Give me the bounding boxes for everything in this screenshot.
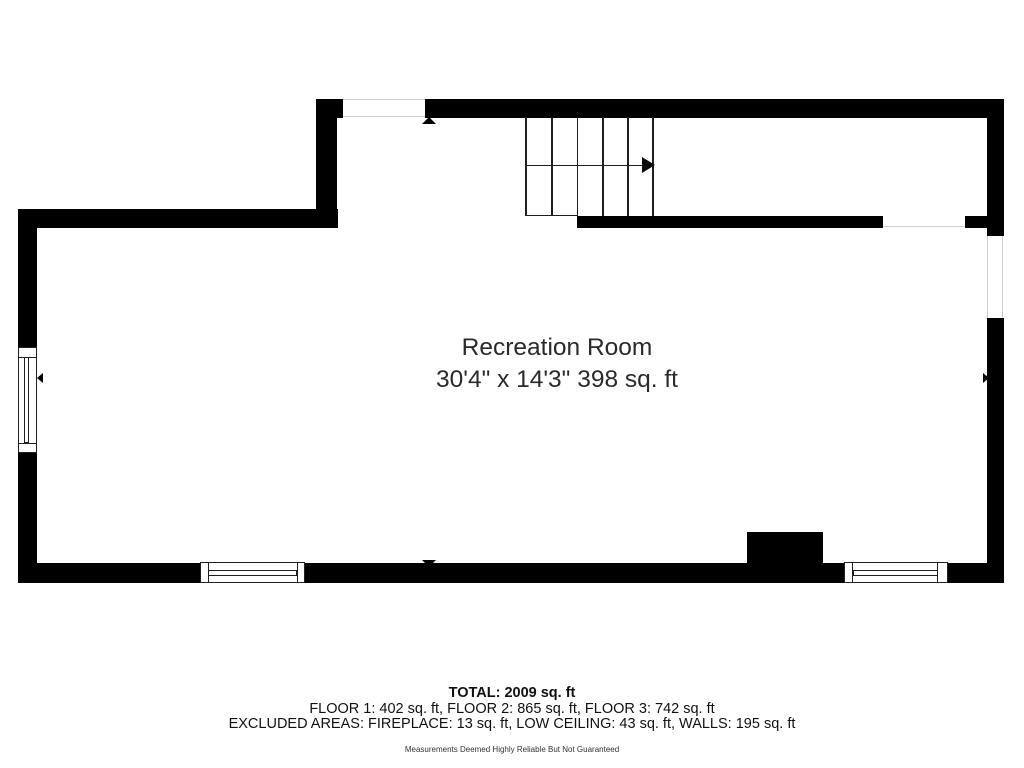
summary-footer: TOTAL: 2009 sq. ft FLOOR 1: 402 sq. ft, … xyxy=(0,686,1024,757)
room-name: Recreation Room xyxy=(357,332,757,364)
stair-landing-opening-line xyxy=(883,226,965,227)
floor-plan-canvas: Recreation Room 30'4" x 14'3" 398 sq. ft xyxy=(0,0,1024,768)
bottom-window-left-cap-line xyxy=(297,563,298,582)
total-area-text: TOTAL: 2009 sq. ft xyxy=(0,686,1024,702)
wall-left-horizontal xyxy=(18,209,338,228)
excluded-areas-text: EXCLUDED AREAS: FIREPLACE: 13 sq. ft, LO… xyxy=(0,717,1024,733)
floorplan-page: Recreation Room 30'4" x 14'3" 398 sq. ft… xyxy=(0,0,1024,768)
wall-left-upper xyxy=(18,209,37,348)
wall-top-main xyxy=(425,99,1004,118)
entry-marker-up-icon xyxy=(422,117,436,124)
room-label: Recreation Room 30'4" x 14'3" 398 sq. ft xyxy=(357,332,757,396)
floor-areas-text: FLOOR 1: 402 sq. ft, FLOOR 2: 865 sq. ft… xyxy=(0,702,1024,718)
bottom-window-left-pane xyxy=(208,570,297,576)
entry-marker-down-icon xyxy=(422,560,436,567)
room-dimensions: 30'4" x 14'3" 398 sq. ft xyxy=(357,364,757,396)
stair-tread-line xyxy=(627,117,629,216)
stair-tread-line xyxy=(551,117,553,216)
right-wall-marker-icon xyxy=(983,373,989,383)
wall-below-stairs xyxy=(577,216,883,228)
stair-direction-arrow-shaft xyxy=(526,165,643,167)
stair-direction-arrow-icon xyxy=(642,157,655,173)
wall-stub-right xyxy=(965,216,987,228)
wall-right-lower xyxy=(987,318,1004,583)
left-window-pane xyxy=(24,357,29,443)
stair-tread-line xyxy=(602,117,604,216)
top-opening-lower-line xyxy=(343,116,425,117)
stair-tread-line xyxy=(577,117,579,216)
left-wall-marker-icon xyxy=(37,373,43,383)
top-opening-upper-line xyxy=(343,99,425,100)
wall-right-upper xyxy=(987,99,1004,236)
bottom-window-right-pane xyxy=(853,570,938,576)
right-opening-right-line xyxy=(1002,236,1003,318)
right-opening-left-line xyxy=(987,236,988,318)
fireplace-block xyxy=(747,532,823,563)
stair-bottom-line xyxy=(525,215,578,217)
stair-tread-line xyxy=(525,117,527,216)
disclaimer-text: Measurements Deemed Highly Reliable But … xyxy=(0,742,1024,758)
